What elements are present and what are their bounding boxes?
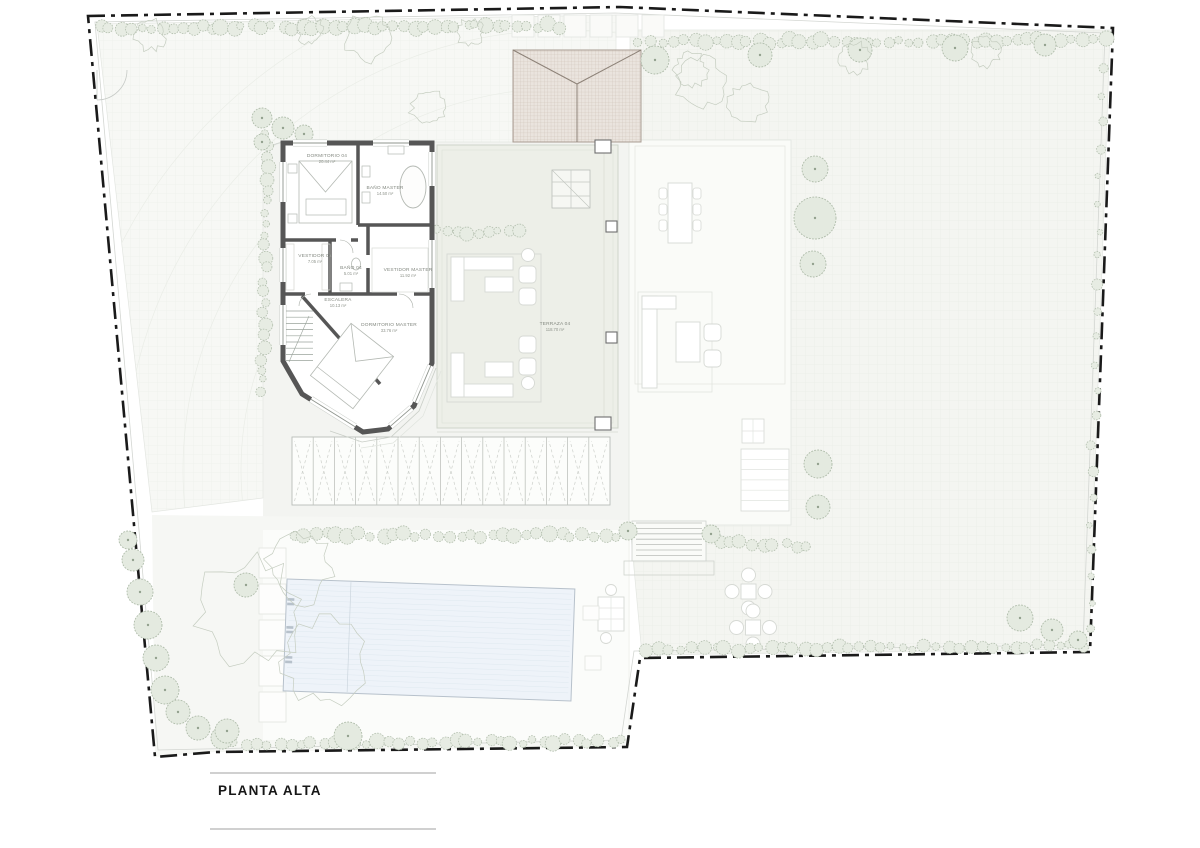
hedge-shrub	[989, 35, 1004, 50]
hedge-shrub	[257, 307, 268, 318]
tree-trunk-dot	[347, 735, 349, 737]
hedge-shrub	[668, 37, 679, 48]
hedge-shrub	[393, 738, 405, 750]
outdoor-sofa	[485, 362, 513, 377]
sofa	[642, 296, 676, 309]
hedge-shrub	[575, 528, 588, 541]
door-opening	[305, 291, 318, 297]
hedge-shrub	[1002, 644, 1010, 652]
hedge-shrub	[1095, 173, 1100, 178]
paver	[259, 584, 286, 614]
hedge-shrub	[266, 21, 274, 29]
dining-chair	[659, 204, 667, 215]
pool-rotated	[283, 579, 575, 701]
pool-chair	[601, 633, 612, 644]
hedge-shrub	[147, 26, 155, 34]
hedge-shrub	[553, 22, 566, 35]
hedge-shrub	[494, 227, 501, 234]
pergola-ghost-square	[616, 15, 638, 37]
hedge-shrub	[987, 643, 997, 653]
tree-trunk-dot	[282, 127, 284, 129]
door-opening	[366, 255, 372, 268]
hedge-shrub	[843, 643, 853, 653]
hedge-shrub	[484, 226, 495, 237]
bistro-chair	[742, 568, 756, 582]
bath-niche	[388, 146, 404, 154]
hedge-shrub	[716, 641, 730, 655]
hedge-shrub	[600, 529, 613, 542]
paver	[259, 620, 286, 650]
hedge-shrub	[746, 539, 757, 550]
hedge-shrub	[506, 529, 521, 544]
hedge-shrub	[913, 38, 922, 47]
tree-trunk-dot	[710, 533, 712, 535]
dining-chair	[659, 220, 667, 231]
paver	[585, 656, 601, 670]
hedge-shrub	[887, 642, 894, 649]
hedge-shrub	[944, 641, 956, 653]
hedge-shrub	[521, 21, 531, 31]
hedge-shrub	[351, 526, 364, 539]
tree-trunk-dot	[127, 539, 129, 541]
hedge-shrub	[444, 531, 455, 542]
sink	[362, 192, 370, 203]
hedge-shrub	[478, 18, 494, 34]
hedge-shrub	[582, 739, 591, 748]
hedge-shrub	[139, 24, 147, 32]
bistro-table	[746, 620, 761, 635]
hedge-shrub	[212, 19, 228, 35]
hedge-shrub	[264, 196, 272, 204]
hedge-shrub	[633, 38, 642, 47]
tree-trunk-dot	[627, 530, 629, 532]
tree-trunk-dot	[812, 263, 814, 265]
hedge-shrub	[125, 23, 137, 35]
hedge-shrub	[261, 232, 268, 239]
hedge-shrub	[783, 539, 792, 548]
hedge-shrub	[502, 736, 516, 750]
paver	[583, 606, 599, 620]
hedge-shrub	[362, 741, 370, 749]
hedge-shrub	[813, 32, 828, 47]
hedge-shrub	[1097, 229, 1103, 235]
hedge-shrub	[500, 21, 510, 31]
hedge-shrub	[1093, 333, 1099, 339]
hedge-shrub	[406, 736, 415, 745]
hedge-shrub	[1095, 388, 1101, 394]
outdoor-sofa	[451, 353, 464, 397]
hedge-shrub	[965, 641, 978, 654]
pouf	[519, 358, 536, 375]
hedge-shrub	[678, 35, 688, 45]
hedge-shrub	[589, 532, 599, 542]
hedge-shrub	[275, 738, 287, 750]
hedge-shrub	[591, 734, 604, 747]
hedge-shrub	[338, 21, 348, 31]
column	[595, 417, 611, 430]
hedge-shrub	[559, 734, 570, 745]
hedge-shrub	[765, 539, 777, 551]
hedge-shrub	[677, 646, 685, 654]
hedge-shrub	[854, 642, 863, 651]
hedge-shrub	[663, 645, 673, 655]
hedge-shrub	[875, 643, 885, 653]
hedge-shrub	[241, 740, 252, 751]
hedge-shrub	[1099, 31, 1114, 46]
hedge-shrub	[387, 21, 397, 31]
nightstand	[288, 214, 297, 223]
hedge-shrub	[1088, 573, 1094, 579]
coffee-table	[676, 322, 700, 362]
hedge-shrub	[1088, 466, 1098, 476]
hedge-shrub	[443, 226, 452, 235]
tree-trunk-dot	[817, 463, 819, 465]
tree-trunk-dot	[859, 49, 861, 51]
hedge-shrub	[932, 643, 940, 651]
hedge-shrub	[542, 526, 558, 542]
hedge-shrub	[1086, 441, 1095, 450]
hedge-shrub	[1002, 36, 1011, 45]
bistro-chair	[758, 585, 772, 599]
hedge-shrub	[410, 532, 419, 541]
hedge-shrub	[540, 16, 555, 31]
hedge-shrub	[258, 367, 266, 375]
hedge-shrub	[262, 299, 270, 307]
hedge-shrub	[169, 24, 179, 34]
window	[429, 152, 435, 186]
hedge-shrub	[698, 641, 712, 655]
hedge-shrub	[417, 738, 429, 750]
armchair	[704, 350, 721, 367]
hedge-shrub	[1098, 93, 1105, 100]
hedge-shrub	[1092, 279, 1103, 290]
hedge-shrub	[698, 35, 713, 50]
hedge-shrub	[530, 528, 541, 539]
hedge-shrub	[884, 38, 894, 48]
floor-plan-canvas: DORMITORIO 0420.44 m² BAÑO MASTER14.50 m…	[0, 0, 1200, 848]
tree-trunk-dot	[226, 730, 228, 732]
hedge-shrub	[792, 35, 806, 49]
hedge-shrub	[262, 262, 272, 272]
side-table	[522, 249, 535, 262]
hedge-shrub	[262, 741, 271, 750]
hedge-shrub	[304, 737, 316, 749]
tree-trunk-dot	[261, 141, 263, 143]
hedge-shrub	[258, 239, 269, 250]
hedge-shrub	[1086, 522, 1092, 528]
hedge-shrub	[254, 21, 267, 34]
hedge-shrub	[459, 734, 472, 747]
bath-sink	[340, 283, 352, 291]
hedge-shrub	[895, 36, 903, 44]
tree-trunk-dot	[1051, 629, 1053, 631]
tree-trunk-dot	[197, 727, 199, 729]
hedge-shrub	[565, 533, 574, 542]
hedge-shrub	[255, 355, 266, 366]
side-table	[522, 377, 535, 390]
hedge-shrub	[732, 535, 745, 548]
hedge-shrub	[917, 639, 930, 652]
hedge-shrub	[310, 528, 323, 541]
pool-chair	[606, 585, 617, 596]
hedge-shrub	[1032, 639, 1042, 649]
bathtub	[400, 166, 426, 208]
hedge-shrub	[287, 739, 299, 751]
sink	[362, 166, 370, 177]
tree-trunk-dot	[817, 506, 819, 508]
hedge-shrub	[822, 642, 832, 652]
pergola-ghost-square	[642, 15, 664, 37]
hedge-shrub	[810, 643, 823, 656]
hedge-shrub	[251, 738, 263, 750]
hedge-shrub	[263, 220, 270, 227]
tree-trunk-dot	[147, 624, 149, 626]
hedge-shrub	[1094, 308, 1101, 315]
hedge-shrub	[428, 738, 437, 747]
hedge-shrub	[909, 646, 916, 653]
door-opening	[336, 237, 351, 243]
tree-trunk-dot	[139, 591, 141, 593]
paver	[259, 656, 286, 686]
column	[606, 332, 617, 343]
hedge-shrub	[977, 641, 988, 652]
bistro-chair	[725, 585, 739, 599]
hedge-shrub	[801, 542, 810, 551]
hedge-shrub	[260, 173, 274, 187]
tree-trunk-dot	[814, 168, 816, 170]
pouf	[519, 336, 536, 353]
hedge-shrub	[617, 735, 625, 743]
hedge-shrub	[639, 644, 652, 657]
title-block: PLANTA ALTA	[210, 773, 436, 829]
hedge-shrub	[237, 22, 244, 29]
bistro-chair	[730, 621, 744, 635]
hedge-shrub	[1019, 642, 1031, 654]
hedge-shrub	[612, 534, 620, 542]
hedge-shrub	[263, 186, 273, 196]
hedge-shrub	[865, 640, 877, 652]
floor-plan-drawing: DORMITORIO 0420.44 m² BAÑO MASTER14.50 m…	[0, 0, 1200, 848]
hedge-shrub	[659, 39, 667, 47]
hedge-shrub	[713, 37, 721, 45]
hedge-shrub	[1087, 625, 1095, 633]
swimming-pool	[283, 579, 575, 701]
bistro-chair	[763, 621, 777, 635]
plan-title: PLANTA ALTA	[218, 783, 322, 798]
hedge-shrub	[755, 643, 763, 651]
hedge-shrub	[785, 642, 798, 655]
outdoor-sofa	[451, 257, 464, 301]
louvre-pergola-deck	[292, 432, 618, 505]
hedge-shrub	[513, 224, 526, 237]
hedge-shrub	[899, 644, 907, 652]
dining-chair	[693, 220, 701, 231]
hedge-shrub	[474, 738, 482, 746]
hedge-shrub	[258, 329, 269, 340]
pool-ladder	[285, 661, 292, 664]
dining-chair	[693, 204, 701, 215]
tree-trunk-dot	[164, 689, 166, 691]
tree-trunk-dot	[759, 54, 761, 56]
hedge-shrub	[399, 21, 410, 32]
window	[429, 240, 435, 288]
tree-trunk-dot	[1077, 639, 1079, 641]
hedge-shrub	[740, 36, 750, 46]
hedge-shrub	[261, 210, 268, 217]
hedge-shrub	[198, 20, 209, 31]
hedge-shrub	[458, 532, 467, 541]
tree-trunk-dot	[132, 559, 134, 561]
pouf	[519, 266, 536, 283]
hedge-shrub	[1099, 64, 1108, 73]
hedge-shrub	[545, 736, 561, 752]
hedge-shrub	[258, 285, 269, 296]
tree-trunk-dot	[954, 47, 956, 49]
pool-ladder	[286, 626, 293, 629]
window	[280, 305, 286, 345]
hedge-shrub	[745, 643, 755, 653]
skylight-grid	[552, 170, 590, 208]
hedge-shrub	[1092, 411, 1101, 420]
hedge-shrub	[103, 23, 113, 33]
hedge-shrub	[1099, 117, 1108, 126]
sofa	[642, 296, 657, 388]
hedge-shrub	[460, 227, 474, 241]
tree-trunk-dot	[303, 133, 305, 135]
tree-trunk-dot	[1019, 617, 1021, 619]
hedge-shrub	[1094, 201, 1100, 207]
hedge-shrub	[256, 387, 266, 397]
hedge-shrub	[1057, 642, 1064, 649]
tree-trunk-dot	[814, 217, 816, 219]
column	[606, 221, 617, 232]
hedge-shrub	[1088, 545, 1096, 553]
bistro-chair	[746, 604, 760, 618]
hedge-shrub	[260, 375, 267, 382]
pouf	[519, 288, 536, 305]
hedge-shrub	[645, 36, 656, 47]
hedge-shrub	[520, 740, 527, 747]
hedge-shrub	[296, 529, 310, 543]
dining-table	[668, 183, 692, 243]
hedge-shrub	[178, 23, 189, 34]
hedge-shrub	[1097, 145, 1106, 154]
hedge-shrub	[1044, 640, 1055, 651]
bistro-table	[741, 584, 756, 599]
hedge-shrub	[872, 39, 880, 47]
dining-chair	[659, 188, 667, 199]
hedge-shrub	[1089, 35, 1098, 44]
tree-trunk-dot	[155, 657, 157, 659]
window	[280, 162, 286, 202]
hedge-shrub	[905, 39, 913, 47]
pergola-ghost-square	[564, 15, 586, 37]
column	[595, 140, 611, 153]
hedge-shrub	[418, 21, 429, 32]
hedge-shrub	[829, 36, 840, 47]
hedge-shrub	[1067, 35, 1075, 43]
nightstand	[288, 164, 297, 173]
tree-trunk-dot	[245, 584, 247, 586]
hedge-shrub	[475, 230, 484, 239]
hedge-shrub	[285, 23, 298, 36]
hedge-shrub	[686, 642, 697, 653]
hedge-shrub	[528, 736, 536, 744]
hedge-shrub	[486, 734, 497, 745]
tiled-roof	[513, 50, 641, 142]
hedge-shrub	[396, 526, 410, 540]
hedge-shrub	[262, 160, 276, 174]
hedge-shrub	[474, 531, 486, 543]
hedge-shrub	[732, 644, 746, 658]
hedge-shrub	[1090, 494, 1097, 501]
pergola-ghost-square	[590, 15, 612, 37]
hedge-shrub	[1076, 33, 1090, 47]
hedge-shrub	[258, 341, 272, 355]
hedge-shrub	[954, 643, 964, 653]
tree-trunk-dot	[1044, 44, 1046, 46]
hedge-shrub	[433, 532, 443, 542]
tree-trunk-dot	[654, 59, 656, 61]
tree-trunk-dot	[177, 711, 179, 713]
hedge-shrub	[1094, 251, 1100, 257]
armchair	[704, 324, 721, 341]
louvre-deck-frame	[292, 437, 610, 505]
tree-trunk-dot	[261, 117, 263, 119]
hedge-shrub	[420, 529, 430, 539]
hedge-shrub	[369, 733, 385, 749]
window	[293, 140, 327, 146]
paver	[259, 692, 286, 722]
hedge-shrub	[365, 532, 374, 541]
window	[280, 248, 286, 282]
outdoor-sofa	[485, 277, 513, 292]
hedge-shrub	[522, 530, 531, 539]
hedge-shrub	[1089, 600, 1095, 606]
hedge-shrub	[428, 20, 443, 35]
dining-chair	[693, 188, 701, 199]
window	[373, 140, 409, 146]
hedge-shrub	[1091, 362, 1098, 369]
